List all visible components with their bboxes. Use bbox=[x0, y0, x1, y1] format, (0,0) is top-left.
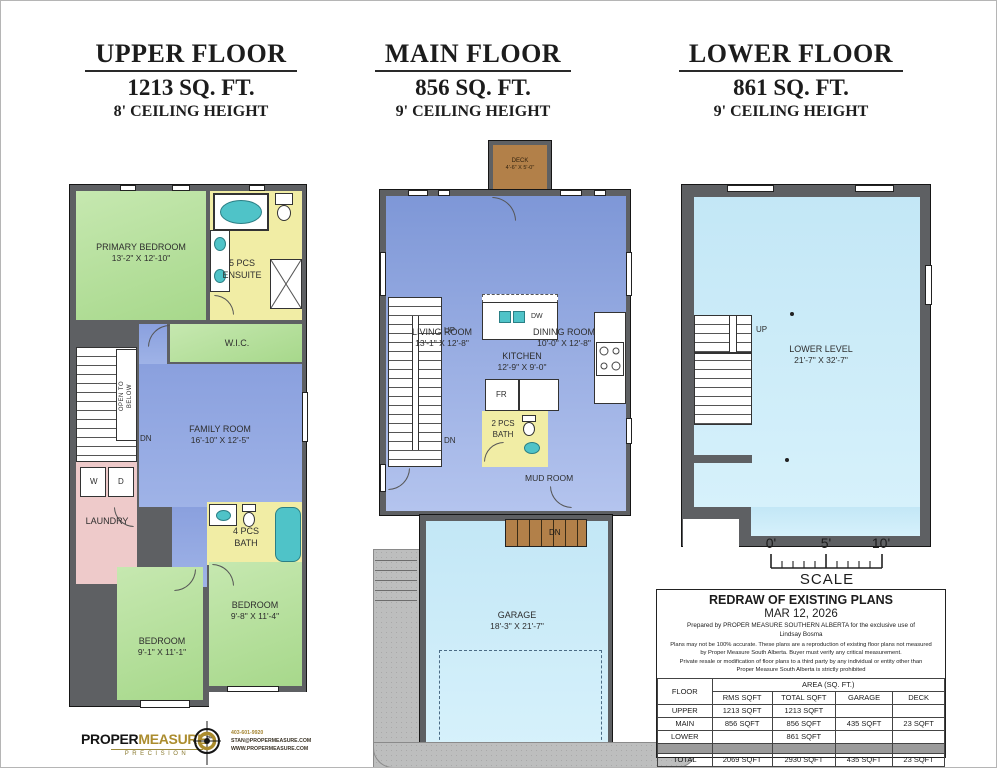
fridge-box: FR bbox=[485, 379, 519, 411]
support-post bbox=[785, 458, 789, 462]
laundry-label: LAUNDRY bbox=[80, 515, 134, 527]
scale-label: SCALE bbox=[777, 571, 877, 588]
ensuite-label: 5 PCS ENSUITE bbox=[204, 257, 280, 281]
scale-tick-5: 5' bbox=[814, 535, 838, 551]
proper-measure-logo: PROPERMEASURETM PRECISION 403-601-9920 S… bbox=[81, 717, 321, 767]
table-total-row: TOTAL 2069 SQFT 2930 SQFT 435 SQFT 23 SQ… bbox=[658, 753, 945, 766]
main-floor-area: 856 SQ. FT. bbox=[349, 75, 597, 101]
table-row: MAIN 856 SQFT 856 SQFT 435 SQFT 23 SQFT bbox=[658, 717, 945, 730]
window bbox=[302, 392, 308, 442]
sink-icon bbox=[214, 237, 226, 251]
entry-steps bbox=[375, 551, 417, 603]
bath-vanity bbox=[209, 504, 237, 526]
window bbox=[925, 265, 932, 305]
area-table: FLOOR AREA (SQ. FT.) RMS SQFT TOTAL SQFT… bbox=[657, 678, 945, 767]
main-dn-label: DN bbox=[444, 436, 456, 445]
deck: DECK 4'-6" X 5'-0" bbox=[489, 141, 551, 193]
window bbox=[408, 190, 428, 196]
garage-label: GARAGE 18'-3" X 21'-7" bbox=[475, 609, 559, 633]
bathtub-2 bbox=[275, 507, 301, 562]
upper-floor-ceiling: 8' CEILING HEIGHT bbox=[67, 103, 315, 121]
lower-floor-title: LOWER FLOOR bbox=[679, 39, 903, 72]
scale-tick-0: 0' bbox=[759, 535, 783, 551]
prepared-by-line1: Prepared by PROPER MEASURE SOUTHERN ALBE… bbox=[657, 622, 945, 631]
area-table-header-row: FLOOR AREA (SQ. FT.) bbox=[658, 678, 945, 691]
toilet-tank bbox=[242, 504, 256, 512]
window bbox=[727, 185, 774, 192]
powder-bath-label: 2 PCS BATH bbox=[484, 419, 522, 441]
contact-block: 403-601-9920 STAN@PROPERMEASURE.COM WWW.… bbox=[231, 730, 311, 753]
scale-bar: 0' 5' 10' SCALE bbox=[753, 535, 923, 587]
info-table: REDRAW OF EXISTING PLANS MAR 12, 2026 Pr… bbox=[656, 589, 946, 758]
table-row: UPPER 1213 SQFT 1213 SQFT bbox=[658, 704, 945, 717]
driveway-apron bbox=[373, 742, 697, 768]
garage-stairs: DN bbox=[505, 519, 587, 547]
window bbox=[120, 185, 136, 191]
main-floor-title: MAIN FLOOR bbox=[375, 39, 571, 72]
wall-stub bbox=[694, 455, 752, 463]
dryer-box: D bbox=[108, 467, 134, 497]
deck-label: DECK 4'-6" X 5'-0" bbox=[493, 157, 547, 173]
sink-icon bbox=[524, 442, 540, 454]
sink-icon bbox=[216, 510, 231, 521]
lower-floor-area: 861 SQ. FT. bbox=[666, 75, 916, 101]
main-block: DW FR bbox=[379, 189, 631, 516]
bedroom-left-label: BEDROOM 9'-1" X 11'-1" bbox=[122, 635, 202, 659]
col-floor: FLOOR bbox=[658, 678, 713, 704]
dining-room-label: DINING ROOM 10'-0" X 12'-8" bbox=[518, 326, 610, 350]
lower-level-room-ext bbox=[751, 507, 920, 536]
table-row: LOWER 861 SQFT bbox=[658, 730, 945, 743]
dryer-label: D bbox=[118, 477, 124, 486]
disclaimer-line1: Plans may not be 100% accurate. These pl… bbox=[657, 641, 945, 649]
col-rms: RMS SQFT bbox=[712, 691, 772, 704]
table-spacer-row bbox=[658, 743, 945, 753]
window bbox=[438, 190, 450, 196]
mud-room-label: MUD ROOM bbox=[525, 473, 573, 483]
upper-dn-label: DN bbox=[140, 434, 152, 443]
disclaimer-line4: Proper Measure South Alberta is strictly… bbox=[657, 666, 945, 674]
prepared-by-line2: Lindsay Bosma bbox=[657, 631, 945, 640]
window bbox=[560, 190, 582, 196]
door-gap bbox=[626, 418, 632, 444]
upper-floor-title-block: UPPER FLOOR 1213 SQ. FT. 8' CEILING HEIG… bbox=[67, 39, 315, 121]
lower-floor-plan: UP LOWER LEVEL 21'-7" X 32'-7" bbox=[681, 184, 931, 547]
lower-stairs bbox=[694, 315, 752, 425]
counter bbox=[519, 379, 559, 411]
bathtub-basin bbox=[220, 200, 262, 224]
brand-tagline: PRECISION bbox=[111, 749, 203, 757]
bedroom-left-room bbox=[117, 567, 203, 700]
window bbox=[227, 686, 279, 692]
website: WWW.PROPERMEASURE.COM bbox=[231, 746, 311, 754]
email: STAN@PROPERMEASURE.COM bbox=[231, 738, 311, 746]
window bbox=[594, 190, 606, 196]
col-garage: GARAGE bbox=[835, 691, 892, 704]
col-deck: DECK bbox=[893, 691, 945, 704]
upper-floor-title: UPPER FLOOR bbox=[85, 39, 296, 72]
window bbox=[249, 185, 265, 191]
scale-tick-10: 10' bbox=[869, 535, 893, 551]
garage-dn-label: DN bbox=[549, 528, 561, 537]
lower-level-label: LOWER LEVEL 21'-7" X 32'-7" bbox=[771, 343, 871, 367]
toilet-bowl bbox=[523, 422, 535, 436]
lower-floor-ceiling: 9' CEILING HEIGHT bbox=[666, 103, 916, 121]
washer-label: W bbox=[90, 477, 98, 486]
garage-door-outline bbox=[439, 650, 602, 745]
living-room-label: LIVING ROOM 13'-1" X 12'-8" bbox=[396, 326, 488, 350]
main-stairs bbox=[388, 297, 442, 467]
window bbox=[380, 252, 386, 296]
scale-ruler-icon bbox=[770, 552, 883, 569]
sink-icon bbox=[513, 311, 525, 323]
table-date: MAR 12, 2026 bbox=[657, 608, 945, 620]
fridge-label: FR bbox=[496, 390, 507, 399]
main-floor-title-block: MAIN FLOOR 856 SQ. FT. 9' CEILING HEIGHT bbox=[349, 39, 597, 121]
upper-bath-label: 4 PCS BATH bbox=[216, 525, 276, 549]
target-icon bbox=[193, 721, 223, 765]
garage-block: DN GARAGE 18'-3" X 21'-7" bbox=[419, 514, 613, 751]
disclaimer-line2: by Proper Measure South Alberta. Buyer m… bbox=[657, 649, 945, 657]
disclaimer-line3: Private resale or modification of floor … bbox=[657, 658, 945, 666]
kitchen-label: KITCHEN 12'-9" X 9'-0" bbox=[482, 350, 562, 374]
door-gap bbox=[380, 464, 386, 492]
dishwasher-label: DW bbox=[531, 313, 543, 320]
wic-label: W.I.C. bbox=[197, 337, 277, 349]
upper-floor-area: 1213 SQ. FT. bbox=[67, 75, 315, 101]
toilet-bowl bbox=[277, 205, 291, 221]
floor-plan-sheet: UPPER FLOOR 1213 SQ. FT. 8' CEILING HEIG… bbox=[0, 0, 997, 768]
family-room-label: FAMILY ROOM 16'-10" X 12'-5" bbox=[170, 423, 270, 447]
main-floor-ceiling: 9' CEILING HEIGHT bbox=[349, 103, 597, 121]
upper-floor-plan: W D PRIMARY BEDROOM 13'-2" X 12'-10" 5 P… bbox=[69, 184, 307, 707]
col-total: TOTAL SQFT bbox=[772, 691, 835, 704]
exterior-notch bbox=[683, 519, 739, 547]
window bbox=[172, 185, 190, 191]
bathtub bbox=[213, 193, 269, 231]
main-up-label: UP bbox=[444, 326, 455, 335]
phone-number: 403-601-9920 bbox=[231, 730, 311, 738]
window bbox=[140, 700, 190, 708]
washer-box: W bbox=[80, 467, 106, 497]
lower-up-label: UP bbox=[756, 325, 767, 334]
table-title: REDRAW OF EXISTING PLANS bbox=[657, 593, 945, 607]
support-post bbox=[790, 312, 794, 316]
toilet-tank bbox=[275, 193, 293, 205]
window bbox=[855, 185, 894, 192]
lower-floor-title-block: LOWER FLOOR 861 SQ. FT. 9' CEILING HEIGH… bbox=[666, 39, 916, 121]
primary-bedroom-label: PRIMARY BEDROOM 13'-2" X 12'-10" bbox=[86, 241, 196, 265]
brand-name: PROPERMEASURETM bbox=[81, 731, 211, 747]
open-to-below-label: OPEN TO BELOW bbox=[119, 351, 135, 441]
bedroom-right-label: BEDROOM 9'-8" X 11'-4" bbox=[215, 599, 295, 623]
sink-icon bbox=[499, 311, 511, 323]
toilet-tank bbox=[522, 415, 536, 422]
window bbox=[626, 252, 632, 296]
stair-landing-line bbox=[695, 352, 751, 354]
stair-divider bbox=[729, 316, 737, 352]
exterior-step-cutout bbox=[209, 692, 308, 708]
col-area: AREA (SQ. FT.) bbox=[712, 678, 944, 691]
